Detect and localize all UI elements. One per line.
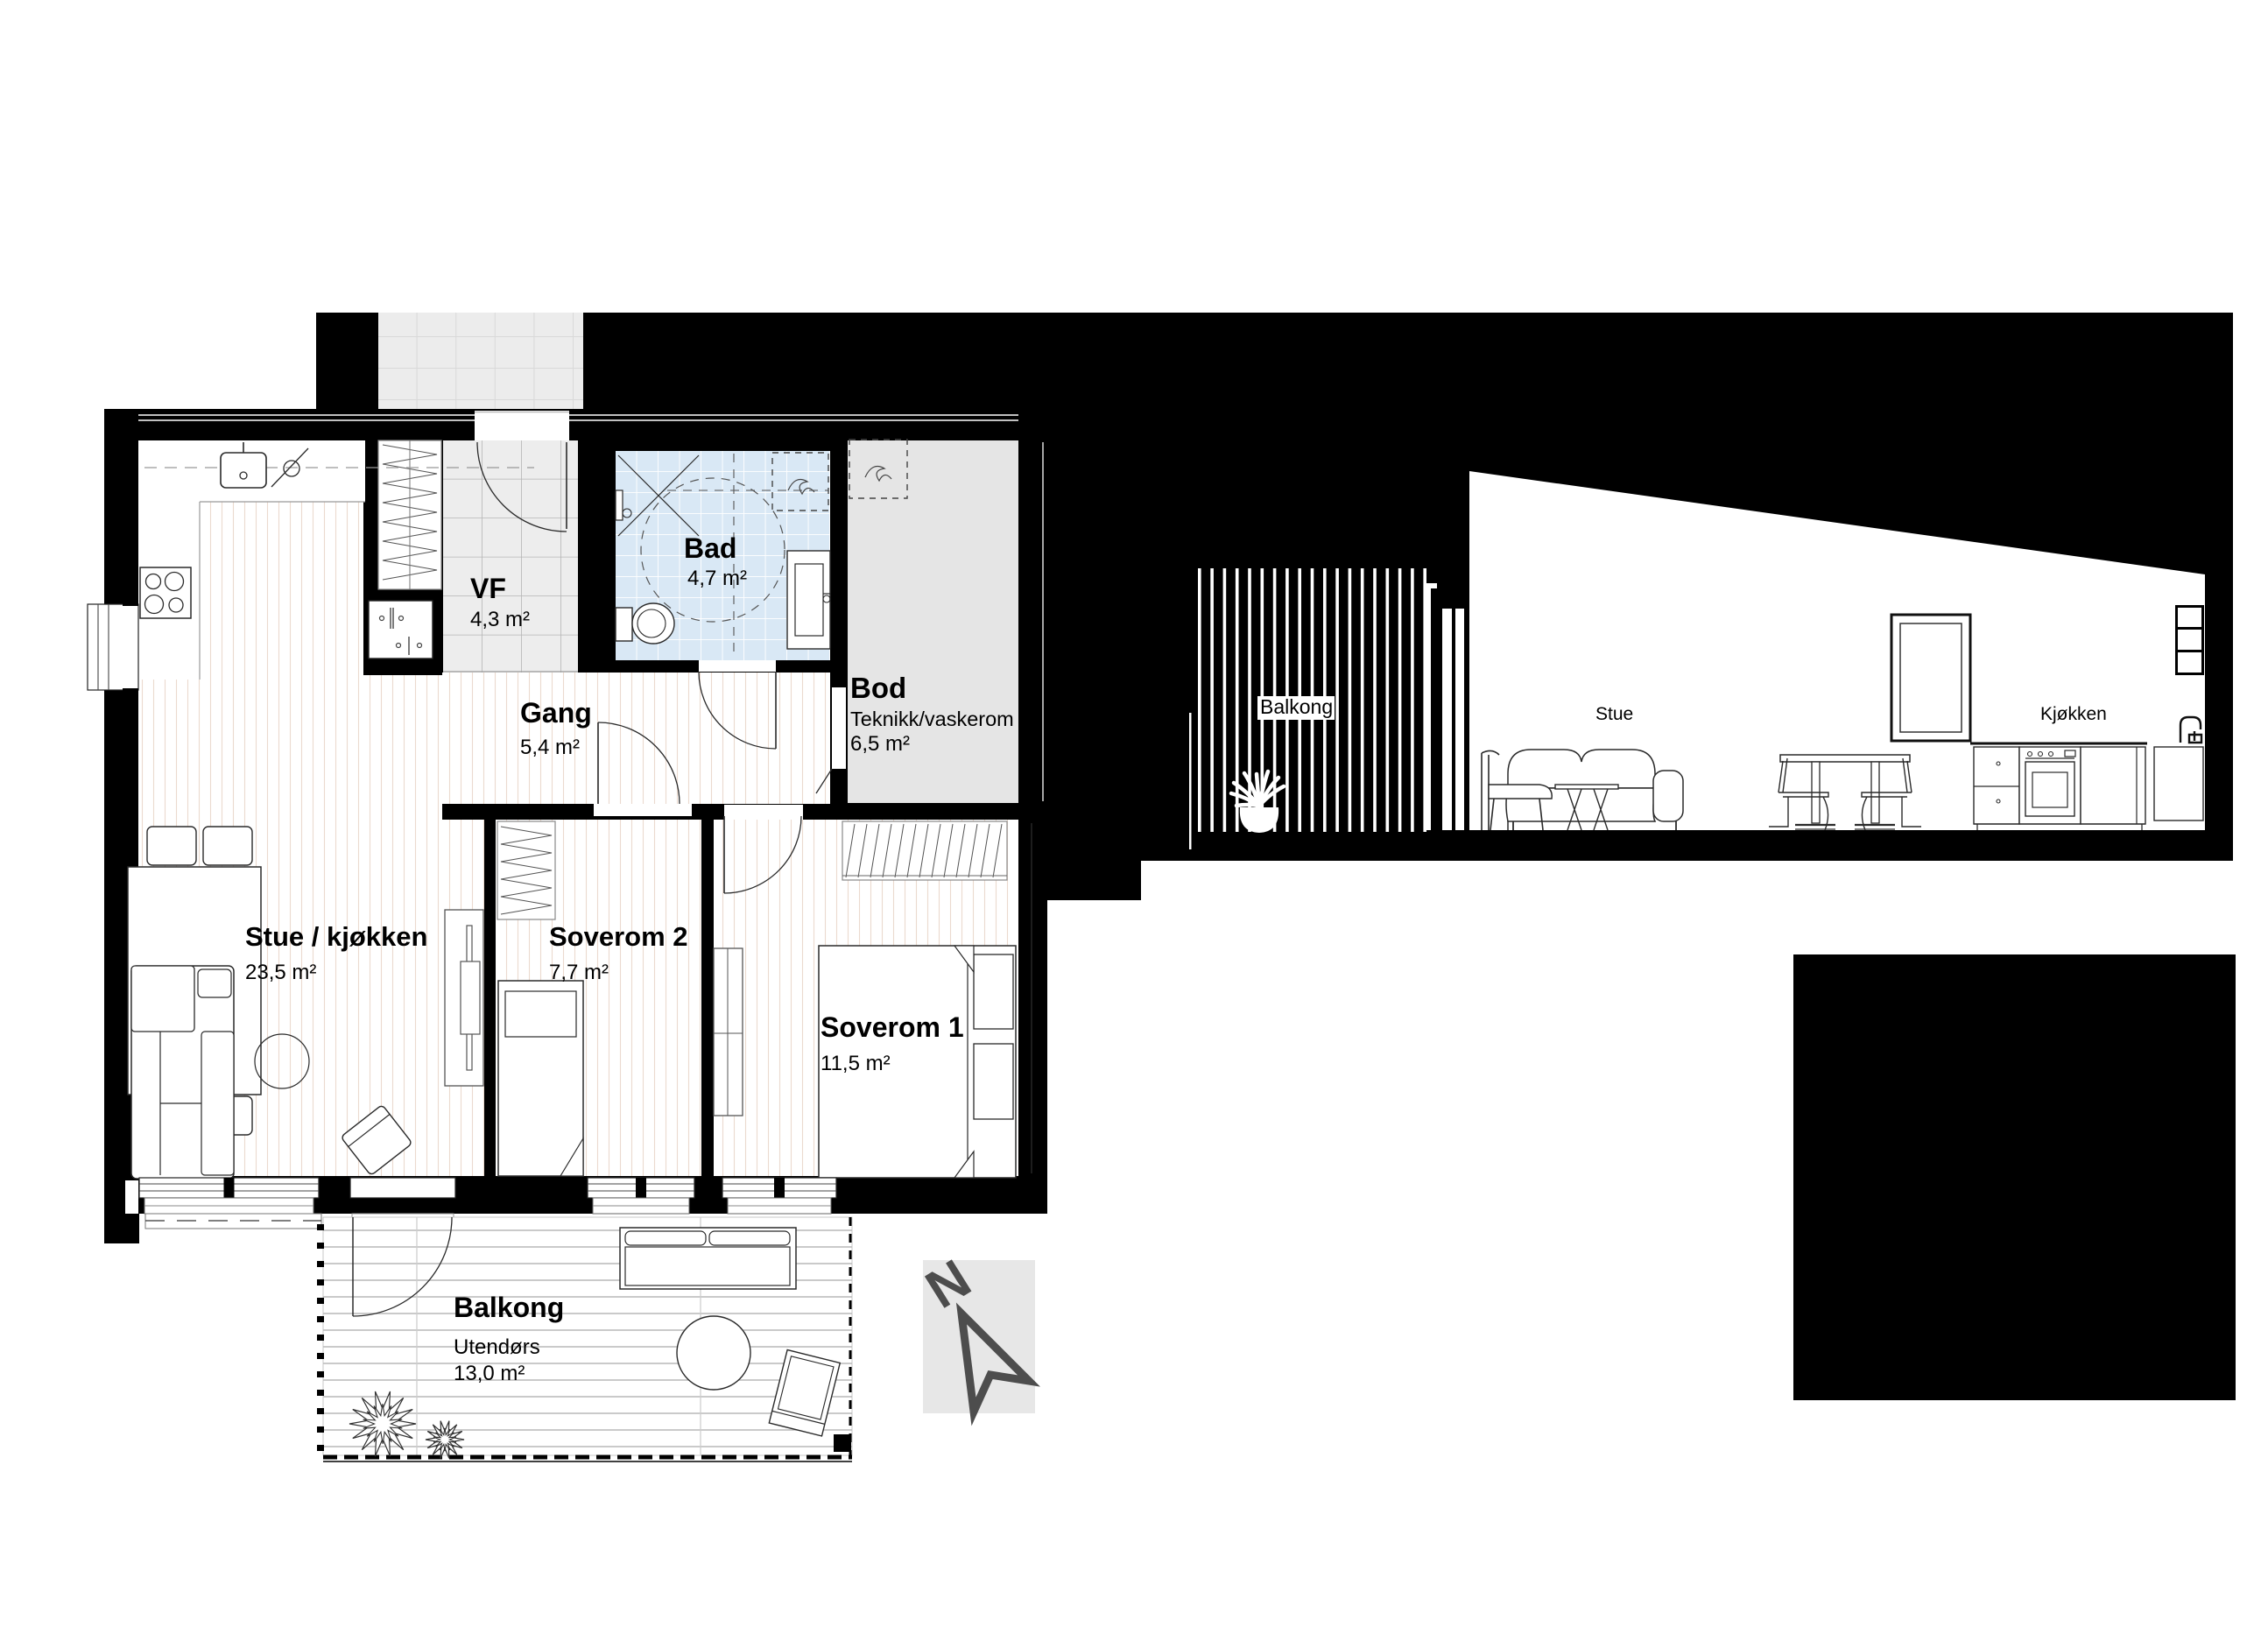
svg-text:Utendørs: Utendørs [454, 1335, 540, 1359]
svg-text:Bad: Bad [684, 532, 736, 564]
svg-text:VF: VF [470, 573, 506, 604]
svg-text:Soverom 2: Soverom 2 [549, 921, 688, 952]
svg-text:Balkong: Balkong [1260, 695, 1333, 718]
svg-text:11,5 m²: 11,5 m² [821, 1052, 891, 1075]
svg-text:Soverom 1: Soverom 1 [821, 1011, 964, 1043]
svg-text:Kjøkken: Kjøkken [2040, 704, 2107, 724]
svg-text:Bod: Bod [850, 672, 906, 704]
svg-text:7,7 m²: 7,7 m² [549, 961, 609, 984]
svg-text:4,7 m²: 4,7 m² [687, 567, 747, 590]
svg-text:6,5 m²: 6,5 m² [850, 732, 910, 756]
svg-text:23,5 m²: 23,5 m² [245, 961, 316, 984]
svg-text:13,0 m²: 13,0 m² [454, 1362, 525, 1385]
svg-text:Stue: Stue [1595, 704, 1633, 724]
svg-text:Teknikk/vaskerom: Teknikk/vaskerom [850, 708, 1014, 730]
svg-text:5,4 m²: 5,4 m² [520, 736, 580, 759]
svg-text:Balkong: Balkong [454, 1292, 564, 1323]
svg-text:Stue / kjøkken: Stue / kjøkken [245, 921, 427, 952]
svg-text:Gang: Gang [520, 697, 592, 729]
svg-text:4,3 m²: 4,3 m² [470, 608, 530, 631]
